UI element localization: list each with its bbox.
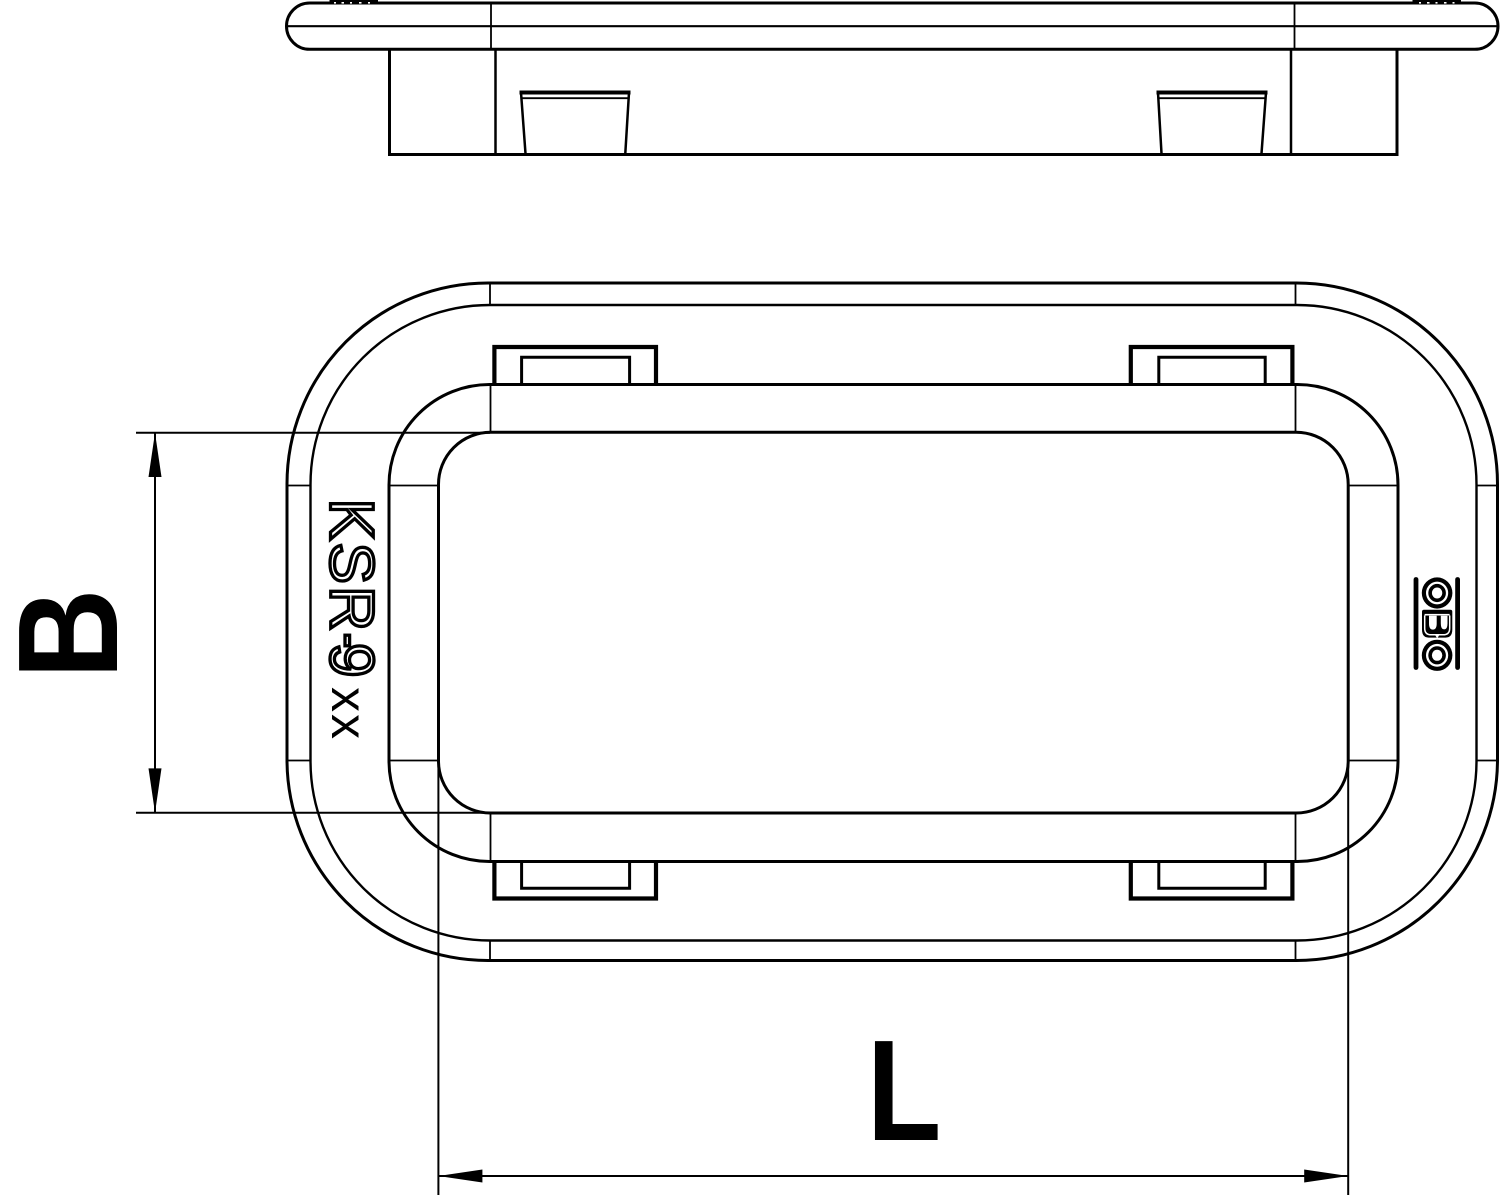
svg-text:L: L (867, 1011, 942, 1172)
svg-text:B: B (0, 589, 148, 679)
svg-text:xx: xx (321, 687, 377, 741)
svg-text:KSR: KSR (317, 499, 386, 634)
svg-text:9: 9 (317, 643, 386, 677)
